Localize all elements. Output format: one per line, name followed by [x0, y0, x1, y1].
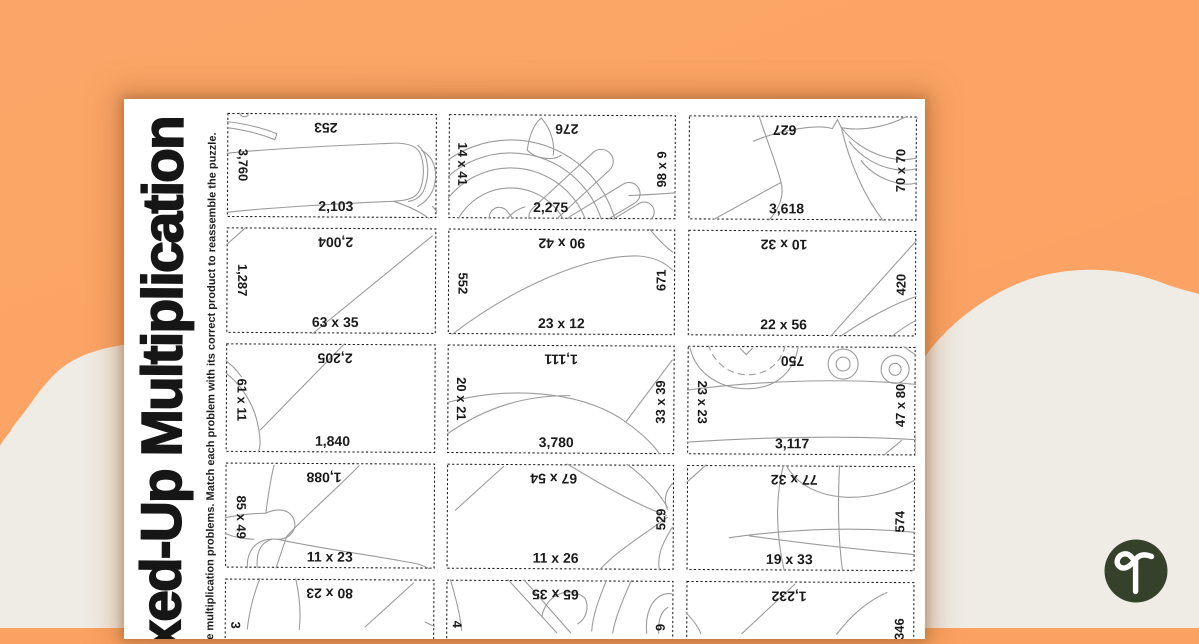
svg-text:23 x 23: 23 x 23 [695, 381, 710, 424]
svg-text:14 x 41: 14 x 41 [455, 142, 470, 185]
svg-text:20 x 21: 20 x 21 [454, 377, 469, 420]
svg-text:9: 9 [653, 624, 668, 631]
svg-text:19 x 33: 19 x 33 [766, 551, 813, 567]
svg-text:574: 574 [892, 510, 907, 533]
svg-text:2,103: 2,103 [318, 198, 353, 214]
svg-text:1,287: 1,287 [235, 264, 250, 297]
svg-text:420: 420 [893, 274, 908, 296]
svg-text:2,275: 2,275 [533, 199, 568, 215]
svg-text:33 x 39: 33 x 39 [653, 380, 668, 423]
svg-text:2,004: 2,004 [318, 234, 353, 250]
svg-text:3,117: 3,117 [775, 435, 810, 451]
svg-text:11 x 23: 11 x 23 [307, 548, 353, 564]
svg-text:47 x 80: 47 x 80 [893, 384, 908, 427]
svg-text:11 x 26: 11 x 26 [533, 550, 579, 566]
svg-text:Mixed-Up Multiplication: Mixed-Up Multiplication [129, 117, 196, 639]
svg-text:3,618: 3,618 [769, 200, 804, 216]
svg-text:63 x 35: 63 x 35 [312, 314, 359, 330]
svg-text:98 x 9: 98 x 9 [654, 151, 669, 187]
svg-text:750: 750 [781, 353, 805, 369]
svg-text:77 x 32: 77 x 32 [771, 472, 818, 488]
svg-text:2,346: 2,346 [892, 618, 907, 639]
svg-text:1,232: 1,232 [771, 588, 806, 604]
svg-text:552: 552 [455, 272, 470, 294]
svg-text:529: 529 [653, 509, 668, 531]
svg-text:1,840: 1,840 [315, 433, 350, 449]
svg-text:85 x 49: 85 x 49 [234, 495, 249, 538]
svg-text:3,780: 3,780 [539, 434, 574, 450]
svg-text:2,205: 2,205 [317, 350, 352, 366]
svg-text:627: 627 [773, 122, 797, 138]
svg-text:65 x 35: 65 x 35 [532, 587, 579, 603]
svg-text:4: 4 [450, 621, 465, 629]
svg-text:80 x 23: 80 x 23 [306, 585, 353, 601]
svg-text:253: 253 [314, 120, 338, 136]
svg-text:23 x 12: 23 x 12 [538, 315, 585, 331]
svg-text:276: 276 [555, 121, 579, 137]
svg-text:671: 671 [654, 269, 669, 291]
svg-text:61 x 11: 61 x 11 [234, 378, 249, 421]
svg-text:3,760: 3,760 [236, 149, 251, 182]
svg-text:67 x 54: 67 x 54 [530, 471, 577, 487]
svg-text:1,088: 1,088 [306, 469, 341, 485]
svg-text:22 x 56: 22 x 56 [760, 316, 807, 332]
svg-text:90 x 42: 90 x 42 [538, 235, 585, 251]
svg-text:10 x 32: 10 x 32 [760, 237, 807, 253]
svg-text:70 x 70: 70 x 70 [893, 149, 908, 192]
svg-text:1,111: 1,111 [544, 352, 578, 368]
svg-text:Cut out the multiplication pro: Cut out the multiplication problems. Mat… [204, 132, 219, 639]
